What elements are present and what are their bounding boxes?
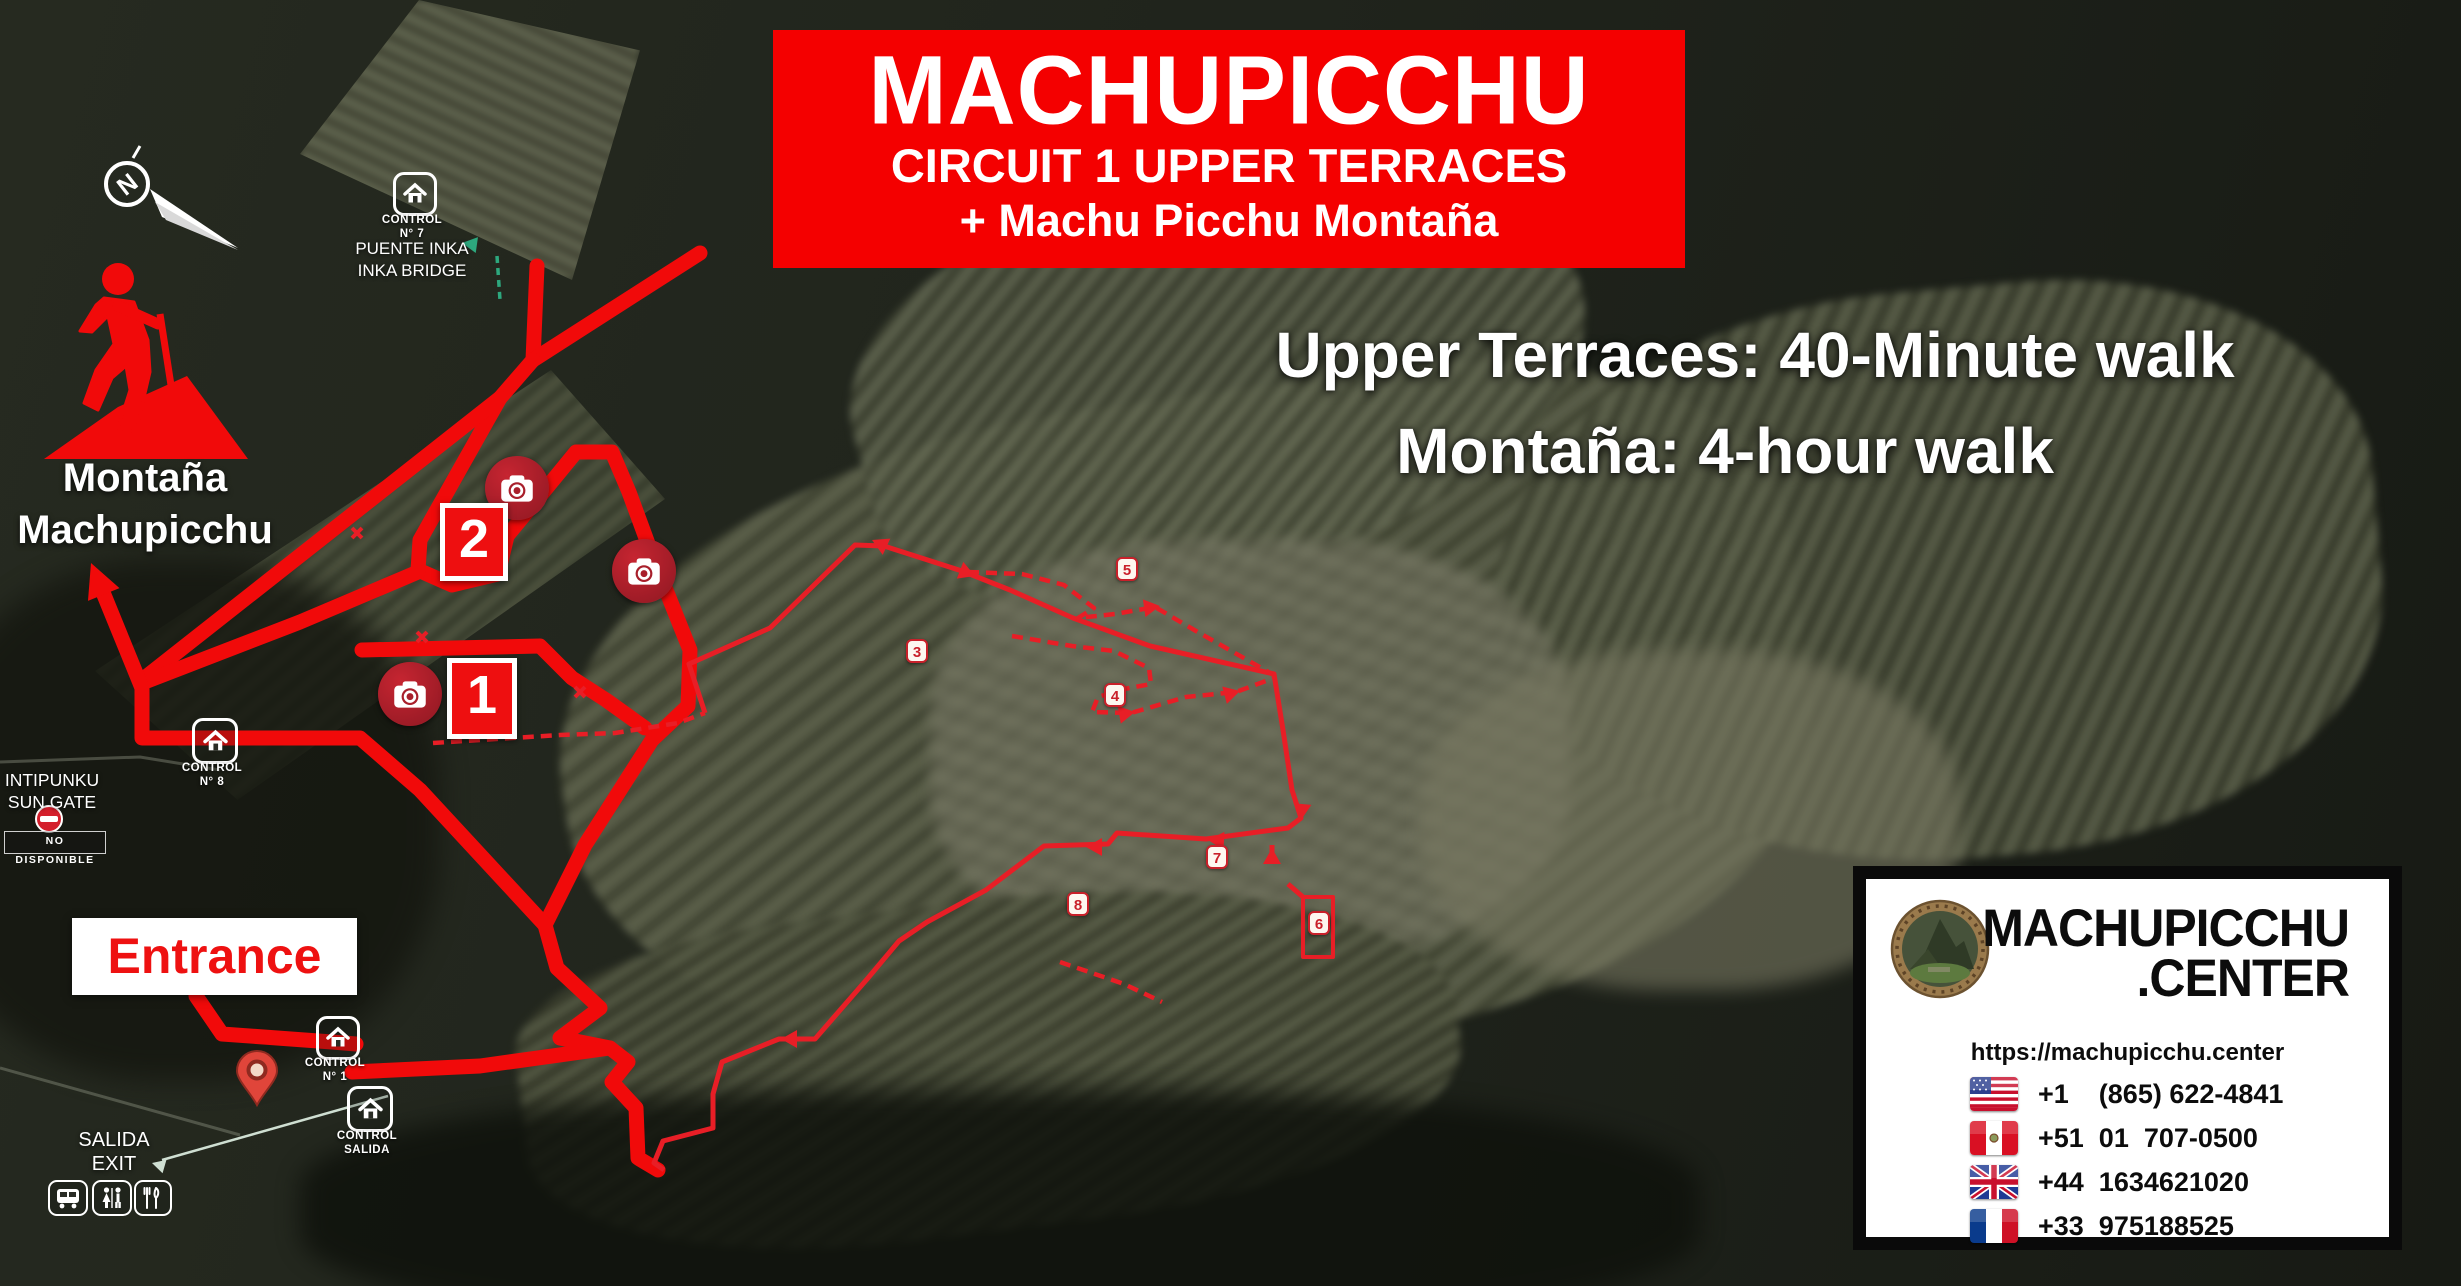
route-circuit-thin — [654, 545, 1333, 1170]
waypoint-box-2: 2 — [440, 503, 508, 581]
phone-number-peru: +51 01 707-0500 — [2038, 1123, 2258, 1154]
montana-machupicchu-label: Montaña Machupicchu — [5, 452, 285, 556]
map-subtitle-circuit: CIRCUIT 1 UPPER TERRACES — [773, 138, 1685, 193]
entrance-label: Entrance — [72, 918, 357, 995]
phone-row-usa: +1 (865) 622-4841 — [1970, 1077, 2283, 1111]
contact-card: MACHUPICCHU .CENTER https://machupicchu.… — [1853, 866, 2402, 1250]
brand-text: MACHUPICCHU .CENTER — [1982, 903, 2349, 1003]
machu-picchu-circuit-map: N MACHUPICCHU CIRCUIT 1 UPPER TERRACES +… — [0, 0, 2461, 1286]
website-url: https://machupicchu.center — [1866, 1039, 2389, 1067]
salida-line: SALIDA — [58, 1128, 170, 1152]
route-direction-arrows — [781, 532, 1311, 1048]
peru-flag-icon — [1970, 1121, 2018, 1155]
usa-flag-icon — [1970, 1077, 2018, 1111]
intipunku-line1: INTIPUNKU — [0, 770, 104, 792]
puente-inka-line2: INKA BRIDGE — [322, 260, 502, 282]
brand-line2: .CENTER — [1982, 952, 2349, 1005]
waypoint-badge-5: 5 — [1116, 557, 1138, 581]
control-8-house-icon — [192, 718, 238, 764]
hiker-on-mountain-icon — [44, 263, 248, 459]
exit-line: EXIT — [58, 1152, 170, 1176]
map-subtitle-montana: + Machu Picchu Montaña — [773, 193, 1685, 249]
waypoint-badge-8: 8 — [1067, 892, 1089, 916]
phone-number-uk: +44 1634621020 — [2038, 1167, 2249, 1198]
restroom-icon — [92, 1180, 132, 1216]
waypoint-box-1: 1 — [447, 658, 517, 739]
entrance-location-pin — [237, 1051, 277, 1105]
route-dashed — [433, 572, 1274, 1002]
waypoint-badge-6: 6 — [1308, 911, 1330, 935]
control-salida-label: CONTROL SALIDA — [307, 1129, 427, 1158]
phone-row-france: +33 975188525 — [1970, 1209, 2234, 1243]
control-7-text: CONTROL — [352, 213, 472, 227]
puente-inka-line1: PUENTE INKA — [322, 238, 502, 260]
puente-inka-label: PUENTE INKA INKA BRIDGE — [322, 238, 502, 282]
montana-label-line1: Montaña — [5, 452, 285, 504]
control-1-number: N° 1 — [276, 1070, 394, 1084]
phone-number-france: +33 975188525 — [2038, 1211, 2234, 1242]
uk-flag-icon — [1970, 1165, 2018, 1199]
waypoint-badge-7: 7 — [1206, 845, 1228, 869]
brand-line1: MACHUPICCHU — [1982, 902, 2349, 955]
salida-exit-label: SALIDA EXIT — [58, 1128, 170, 1176]
waypoint-badge-4: 4 — [1104, 683, 1126, 707]
no-disponible-badge: NO DISPONIBLE — [4, 831, 106, 854]
map-title: MACHUPICCHU — [773, 40, 1685, 140]
restaurant-icon — [134, 1180, 172, 1216]
phone-number-usa: +1 (865) 622-4841 — [2038, 1079, 2283, 1110]
montana-arrowhead — [75, 557, 119, 601]
intipunku-label: INTIPUNKU SUN GATE — [0, 770, 104, 814]
walk-info-line2: Montaña: 4-hour walk — [1060, 414, 2390, 488]
walk-info-line1: Upper Terraces: 40-Minute walk — [1090, 318, 2420, 392]
montana-label-line2: Machupicchu — [5, 504, 285, 556]
photo-spot-camera-icon — [378, 662, 442, 726]
phone-row-uk: +44 1634621020 — [1970, 1165, 2249, 1199]
control-salida-text: CONTROL — [307, 1129, 427, 1143]
control-8-label: CONTROL N° 8 — [152, 761, 272, 790]
photo-spot-camera-icon — [612, 539, 676, 603]
france-flag-icon — [1970, 1209, 2018, 1243]
control-1-label: CONTROL N° 1 — [276, 1056, 394, 1085]
waypoint-badge-3: 3 — [906, 639, 928, 663]
intipunku-line2: SUN GATE — [0, 792, 104, 814]
control-1-house-icon — [316, 1016, 360, 1060]
contact-card-inner: MACHUPICCHU .CENTER https://machupicchu.… — [1866, 879, 2389, 1237]
control-salida-number: SALIDA — [307, 1143, 427, 1157]
north-compass-icon: N — [106, 146, 238, 250]
control-8-number: N° 8 — [152, 775, 272, 789]
control-salida-house-icon — [347, 1086, 393, 1132]
machupicchu-center-logo-icon — [1888, 897, 1992, 1006]
compass-north-letter: N — [112, 168, 143, 201]
control-8-text: CONTROL — [152, 761, 272, 775]
control-1-text: CONTROL — [276, 1056, 394, 1070]
bus-icon — [48, 1180, 88, 1216]
title-banner: MACHUPICCHU CIRCUIT 1 UPPER TERRACES + M… — [773, 30, 1685, 268]
phone-row-peru: +51 01 707-0500 — [1970, 1121, 2258, 1155]
control-7-house-icon — [393, 172, 437, 216]
